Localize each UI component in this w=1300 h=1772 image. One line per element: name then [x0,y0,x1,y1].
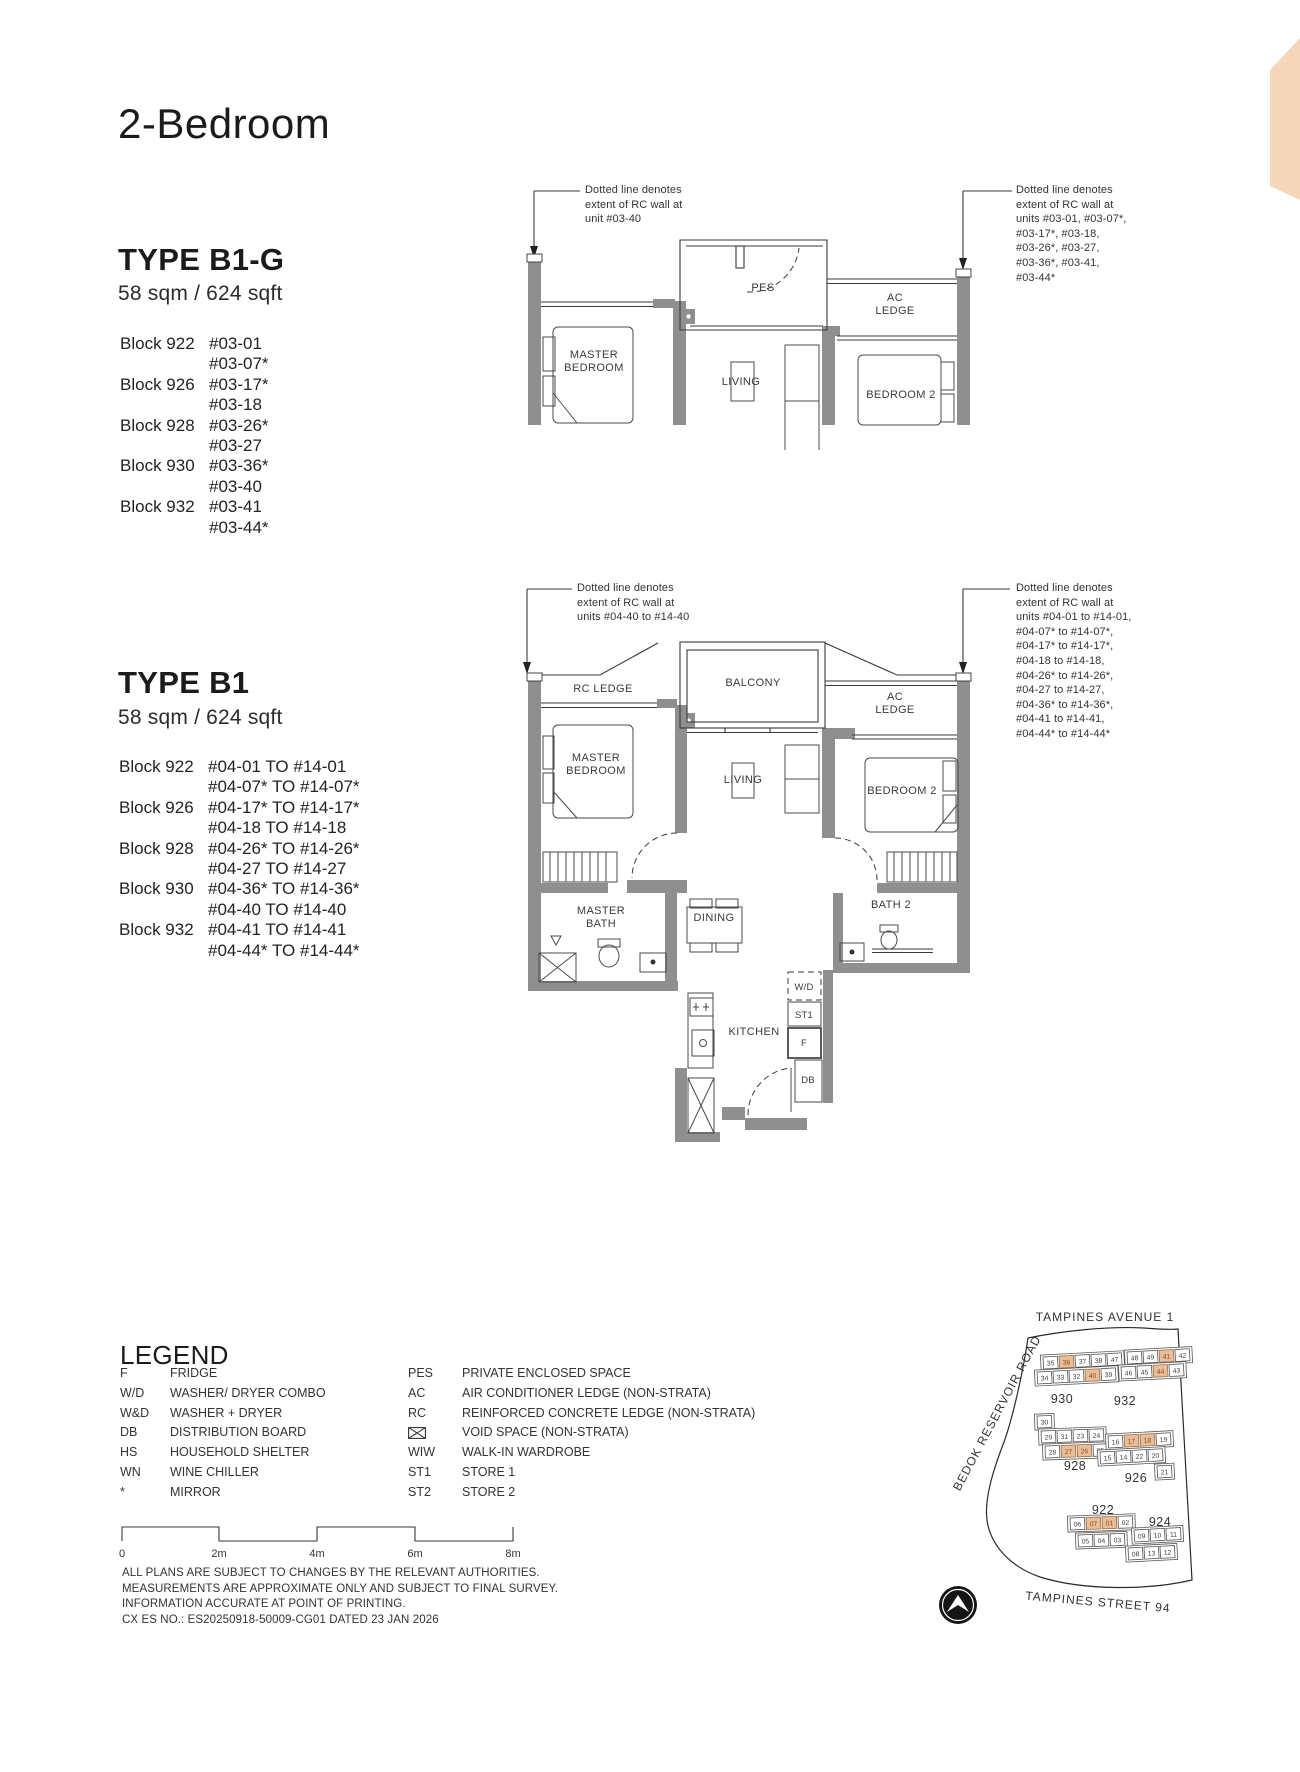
unit-number: 11 [1170,1532,1178,1539]
legend-abbr: F [120,1364,170,1384]
room-label-pes: PES [751,282,774,295]
unit-number: 48 [1131,1355,1139,1362]
legend-abbr: AC [408,1384,462,1404]
unit-number: 18 [1144,1438,1152,1445]
legend-description: STORE 1 [462,1463,738,1483]
room-label-st1: ST1 [795,1009,813,1022]
unit-number: 41 [1163,1354,1171,1361]
room-label-master-bath: MASTER BATH [570,905,632,931]
legend-row: PESPRIVATE ENCLOSED SPACE [408,1364,738,1384]
legend-description: STORE 2 [462,1483,738,1503]
legend-description: PRIVATE ENCLOSED SPACE [462,1364,738,1384]
unit-range: #04-44* TO #14-44* [208,941,360,961]
unit-number: 29 [1045,1434,1053,1441]
legend-abbr: PES [408,1364,462,1384]
legend-row: DBDISTRIBUTION BOARD [120,1423,400,1443]
unit-number: 07 [1090,1521,1098,1528]
block-label: Block 922 [120,334,209,354]
room-label-db: DB [801,1074,815,1087]
site-block-label: 924 [1149,1515,1171,1529]
unit-number: 06 [1074,1521,1082,1528]
block-label [120,477,209,497]
unit-number: 12 [1164,1550,1172,1557]
legend-row: ST2STORE 2 [408,1483,738,1503]
block-label: Block 926 [120,375,209,395]
block-label: Block 930 [120,456,209,476]
unit-number: 15 [1104,1455,1112,1462]
unit-list-row: #03-44* [120,518,269,538]
type-b1-name: TYPE B1 [118,665,249,701]
unit-number: 37 [1079,1359,1087,1366]
unit-list-row: #03-40 [120,477,269,497]
room-label-ac-ledge: AC LEDGE [870,691,920,717]
legend-description: WINE CHILLER [170,1463,400,1483]
block-label [119,859,208,879]
unit-number: 44 [1157,1369,1165,1376]
unit-range: #04-17* TO #14-17* [208,798,360,818]
unit-list-row: #04-40 TO #14-40 [119,900,360,920]
room-label-dining: DINING [694,912,735,925]
unit-range: #03-07* [209,354,269,374]
site-map: TAMPINES AVENUE 1 BEDOK RESERVOIR ROAD T… [830,1140,1300,1672]
legend-description: REINFORCED CONCRETE LEDGE (NON-STRATA) [462,1404,755,1424]
room-label-kitchen: KITCHEN [728,1026,779,1039]
svg-text:2m: 2m [211,1548,226,1560]
b1g-annotation-left: Dotted line denotes extent of RC wall at… [585,183,715,227]
corner-decoration [1265,30,1300,205]
unit-number: 21 [1161,1469,1169,1476]
unit-number: 20 [1152,1453,1160,1460]
unit-list-row: Block 930#04-36* TO #14-36* [119,879,360,899]
type-b1g-unit-list: Block 922#03-01#03-07*Block 926#03-17*#0… [120,334,269,538]
legend-row: ACAIR CONDITIONER LEDGE (NON-STRATA) [408,1384,738,1404]
unit-number: 33 [1057,1374,1065,1381]
svg-text:8m: 8m [505,1548,520,1560]
site-block-label: 926 [1125,1471,1147,1485]
unit-number: 23 [1077,1433,1085,1440]
unit-range: #03-17* [209,375,269,395]
road-label-tampines-street-94: TAMPINES STREET 94 [1025,1589,1171,1616]
unit-list-row: Block 932#04-41 TO #14-41 [119,920,360,940]
site-block-922: 06070102050403922 [1067,1503,1135,1549]
unit-number: 39 [1105,1372,1113,1379]
unit-range: #04-40 TO #14-40 [208,900,360,920]
brochure-page: 2-Bedroom TYPE B1-G 58 sqm / 624 sqft Bl… [0,0,1300,1772]
unit-number: 19 [1160,1437,1168,1444]
legend-abbr: WN [120,1463,170,1483]
legend-description: MIRROR [170,1483,400,1503]
unit-range: #04-07* TO #14-07* [208,777,360,797]
unit-list-row: Block 928#04-26* TO #14-26* [119,839,360,859]
unit-number: 28 [1049,1449,1057,1456]
unit-list-row: Block 922#03-01 [120,334,269,354]
road-label-tampines-avenue-1: TAMPINES AVENUE 1 [1036,1310,1175,1324]
unit-list-row: #03-27 [120,436,269,456]
unit-number: 09 [1138,1533,1146,1540]
block-label [119,777,208,797]
block-label: Block 922 [119,757,208,777]
block-label [120,518,209,538]
legend-row: W/DWASHER/ DRYER COMBO [120,1384,400,1404]
legend-row: VOID SPACE (NON-STRATA) [408,1423,738,1443]
legend-description: VOID SPACE (NON-STRATA) [462,1423,738,1443]
block-label: Block 932 [119,920,208,940]
disclaimer-text: ALL PLANS ARE SUBJECT TO CHANGES BY THE … [122,1566,592,1628]
unit-number: 08 [1132,1551,1140,1558]
void-space-icon [408,1423,462,1443]
unit-range: #04-26* TO #14-26* [208,839,360,859]
legend-abbr: WIW [408,1443,462,1463]
room-label-balcony: BALCONY [725,677,780,690]
unit-number: 42 [1179,1353,1187,1360]
legend-abbr: RC [408,1404,462,1424]
legend-row: ST1STORE 1 [408,1463,738,1483]
site-block-label: 932 [1114,1394,1136,1408]
svg-text:4m: 4m [309,1548,324,1560]
legend-description: WASHER/ DRYER COMBO [170,1384,400,1404]
svg-text:6m: 6m [407,1548,422,1560]
block-label [119,818,208,838]
unit-number: 05 [1082,1538,1090,1545]
page-title: 2-Bedroom [118,100,330,148]
block-label: Block 926 [119,798,208,818]
legend-description: WALK-IN WARDROBE [462,1443,738,1463]
unit-number: 31 [1061,1434,1069,1441]
unit-range: #03-26* [209,416,269,436]
room-label-f: F [801,1037,807,1050]
unit-range: #04-41 TO #14-41 [208,920,360,940]
legend-abbr: * [120,1483,170,1503]
unit-list-row: #04-27 TO #14-27 [119,859,360,879]
north-compass-icon [939,1586,977,1624]
b1-annotation-left: Dotted line denotes extent of RC wall at… [577,581,707,625]
legend-row: WNWINE CHILLER [120,1463,400,1483]
unit-number: 16 [1112,1439,1120,1446]
legend-abbr: W&D [120,1404,170,1424]
legend-description: WASHER + DRYER [170,1404,400,1424]
legend-abbr: ST1 [408,1463,462,1483]
unit-number: 35 [1047,1360,1055,1367]
block-label: Block 928 [120,416,209,436]
block-label: Block 932 [120,497,209,517]
unit-number: 22 [1136,1454,1144,1461]
floorplan-b1g-drawing [440,150,1020,450]
unit-range: #04-27 TO #14-27 [208,859,360,879]
svg-text:0: 0 [119,1548,125,1560]
site-block-932: 4849414246454443932 [1114,1347,1193,1408]
unit-list-row: Block 926#03-17* [120,375,269,395]
unit-list-row: Block 928#03-26* [120,416,269,436]
unit-list-row: #04-44* TO #14-44* [119,941,360,961]
block-label [119,941,208,961]
unit-range: #04-36* TO #14-36* [208,879,360,899]
unit-range: #04-18 TO #14-18 [208,818,360,838]
block-label: Block 930 [119,879,208,899]
legend-abbr: W/D [120,1384,170,1404]
legend-row: FFRIDGE [120,1364,400,1384]
type-b1-area: 58 sqm / 624 sqft [118,706,283,730]
type-b1g-area: 58 sqm / 624 sqft [118,282,283,306]
unit-range: #03-27 [209,436,269,456]
room-label-bath2: BATH 2 [869,899,913,912]
unit-list-row: #04-07* TO #14-07* [119,777,360,797]
unit-number: 46 [1125,1370,1133,1377]
b1-annotation-right: Dotted line denotes extent of RC wall at… [1016,581,1156,742]
room-label-ac-ledge: AC LEDGE [870,292,920,318]
unit-list-row: #03-07* [120,354,269,374]
legend-left-column: FFRIDGEW/DWASHER/ DRYER COMBOW&DWASHER +… [120,1364,400,1503]
room-label-bedroom2: BEDROOM 2 [862,785,942,798]
unit-range: #03-40 [209,477,269,497]
unit-range: #03-44* [209,518,269,538]
legend-row: HSHOUSEHOLD SHELTER [120,1443,400,1463]
unit-list-row: #03-18 [120,395,269,415]
unit-list-row: Block 930#03-36* [120,456,269,476]
legend-description: FRIDGE [170,1364,400,1384]
unit-number: 32 [1073,1374,1081,1381]
room-label-wd: W/D [794,981,813,994]
unit-list-row: Block 932#03-41 [120,497,269,517]
unit-number: 24 [1093,1433,1101,1440]
unit-list-row: Block 922#04-01 TO #14-01 [119,757,360,777]
unit-number: 26 [1081,1448,1089,1455]
unit-number: 36 [1063,1359,1071,1366]
unit-number: 10 [1154,1532,1162,1539]
legend-row: *MIRROR [120,1483,400,1503]
legend-row: RCREINFORCED CONCRETE LEDGE (NON-STRATA) [408,1404,738,1424]
block-label [120,436,209,456]
room-label-bedroom2: BEDROOM 2 [861,389,941,402]
block-label: Block 928 [119,839,208,859]
site-block-label: 922 [1092,1503,1114,1517]
unit-number: 01 [1106,1520,1114,1527]
unit-number: 02 [1122,1520,1130,1527]
site-map-buildings: 3536373847343332403993048494142464544439… [1034,1347,1192,1563]
unit-number: 34 [1041,1375,1049,1382]
block-label [120,354,209,374]
unit-number: 38 [1095,1358,1103,1365]
room-label-master-bedroom: MASTER BEDROOM [548,349,640,375]
unit-number: 14 [1120,1454,1128,1461]
site-block-label: 930 [1051,1392,1073,1406]
legend-row: WIWWALK-IN WARDROBE [408,1443,738,1463]
unit-range: #03-18 [209,395,269,415]
unit-list-row: Block 926#04-17* TO #14-17* [119,798,360,818]
room-label-master-bedroom: MASTER BEDROOM [550,752,642,778]
block-label [120,395,209,415]
legend-description: AIR CONDITIONER LEDGE (NON-STRATA) [462,1384,738,1404]
unit-range: #04-01 TO #14-01 [208,757,360,777]
unit-number: 30 [1041,1419,1049,1426]
legend-abbr: ST2 [408,1483,462,1503]
scale-bar: 0 2m 4m 6m 8m [115,1518,535,1564]
unit-number: 27 [1065,1449,1073,1456]
unit-list-row: #04-18 TO #14-18 [119,818,360,838]
unit-number: 03 [1114,1537,1122,1544]
room-label-living: LIVING [722,376,760,389]
room-label-living: LIVING [724,774,762,787]
unit-number: 45 [1141,1369,1149,1376]
legend-right-column: PESPRIVATE ENCLOSED SPACEACAIR CONDITION… [408,1364,738,1503]
unit-number: 43 [1173,1368,1181,1375]
legend-abbr: HS [120,1443,170,1463]
legend-description: DISTRIBUTION BOARD [170,1423,400,1443]
legend-row: W&DWASHER + DRYER [120,1404,400,1424]
unit-number: 40 [1089,1373,1097,1380]
unit-number: 17 [1128,1438,1136,1445]
type-b1-unit-list: Block 922#04-01 TO #14-01#04-07* TO #14-… [119,757,360,961]
type-b1g-name: TYPE B1-G [118,242,284,278]
site-block-930: 35363738473433324039930 [1034,1351,1124,1406]
unit-range: #03-36* [209,456,269,476]
unit-number: 47 [1111,1357,1119,1364]
unit-number: 49 [1147,1354,1155,1361]
unit-number: 04 [1098,1538,1106,1545]
legend-abbr: DB [120,1423,170,1443]
unit-range: #03-41 [209,497,269,517]
unit-range: #03-01 [209,334,269,354]
block-label [119,900,208,920]
unit-number: 13 [1148,1550,1156,1557]
b1g-annotation-right: Dotted line denotes extent of RC wall at… [1016,183,1151,285]
room-label-rc-ledge: RC LEDGE [548,683,658,696]
site-block-926: 161718191514222021926 [1097,1431,1174,1485]
site-block-label: 928 [1064,1459,1086,1473]
road-label-bedok-reservoir-road: BEDOK RESERVOIR ROAD [950,1333,1044,1493]
legend-description: HOUSEHOLD SHELTER [170,1443,400,1463]
